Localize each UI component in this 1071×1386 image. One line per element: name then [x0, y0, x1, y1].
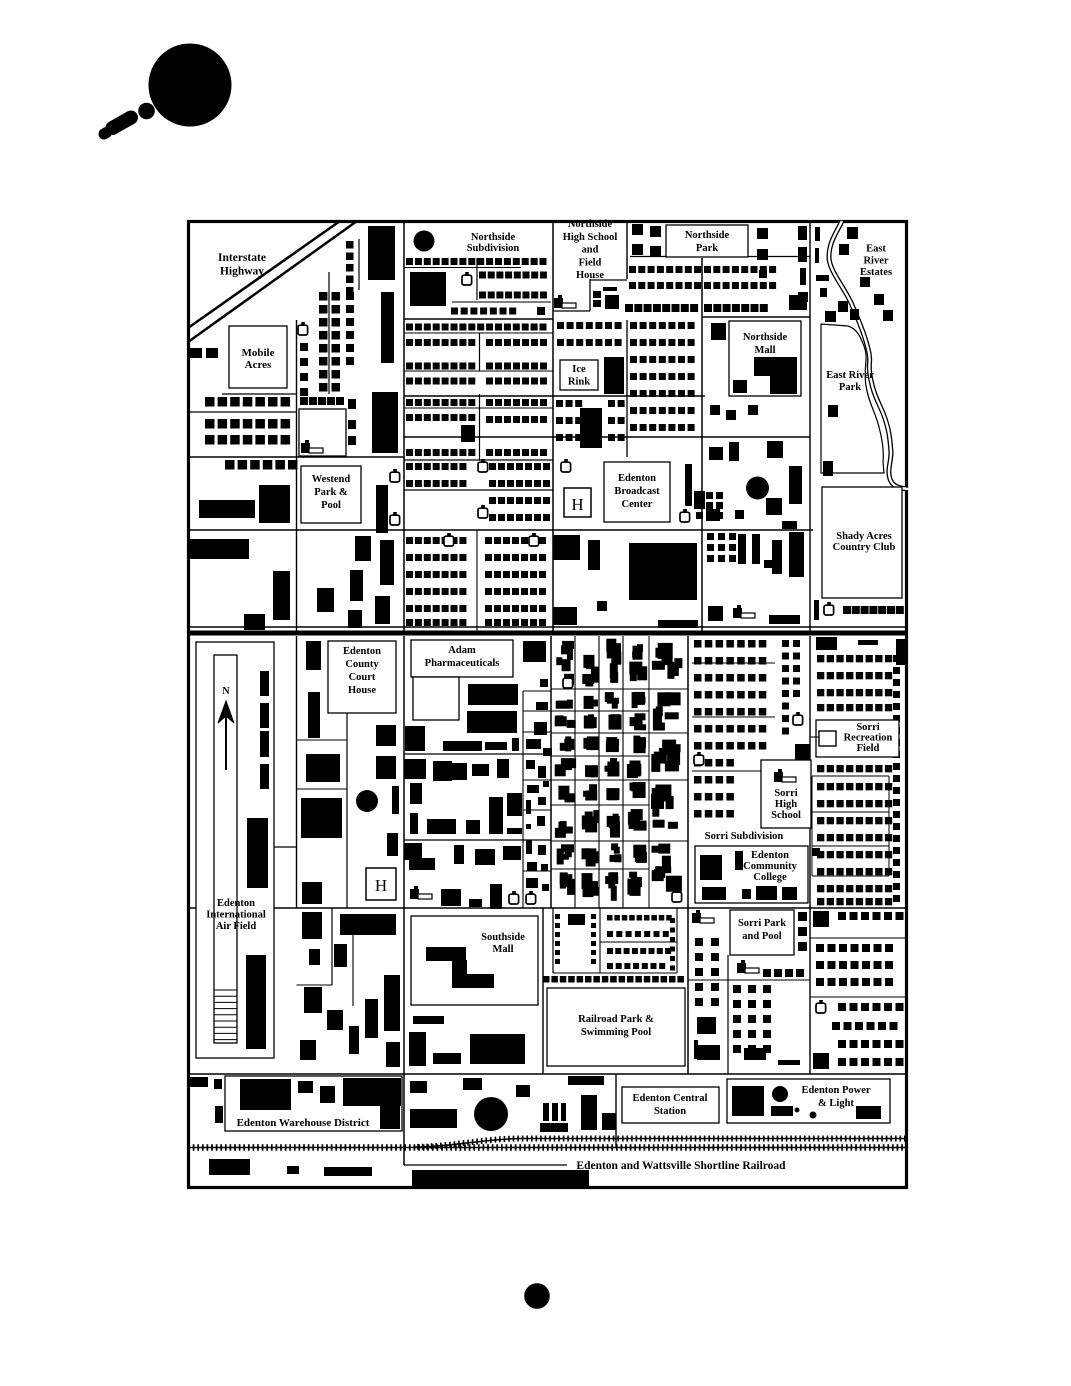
svg-text:Northside: Northside	[471, 232, 516, 243]
svg-text:Interstate: Interstate	[218, 252, 266, 264]
svg-text:Mall: Mall	[493, 944, 514, 955]
svg-text:Sorri: Sorri	[856, 722, 879, 733]
svg-text:Recreation: Recreation	[844, 732, 893, 743]
svg-text:College: College	[753, 872, 787, 883]
svg-text:Sorri: Sorri	[774, 788, 797, 799]
svg-text:& Light: & Light	[818, 1098, 854, 1109]
svg-text:Northside: Northside	[568, 219, 613, 230]
svg-text:Edenton Power: Edenton Power	[801, 1085, 870, 1096]
svg-text:H: H	[375, 876, 387, 895]
svg-text:School: School	[771, 810, 801, 821]
svg-text:Community: Community	[743, 861, 797, 872]
svg-text:East: East	[866, 244, 886, 255]
svg-text:Air Field: Air Field	[216, 921, 257, 932]
svg-text:High School: High School	[563, 232, 618, 243]
svg-text:and Pool: and Pool	[742, 931, 781, 942]
svg-text:Ice: Ice	[572, 364, 586, 375]
svg-text:Station: Station	[654, 1106, 686, 1117]
svg-text:Country Club: Country Club	[833, 542, 896, 553]
svg-text:and: and	[582, 245, 599, 256]
svg-text:Edenton: Edenton	[618, 473, 656, 484]
svg-text:County: County	[345, 659, 379, 670]
svg-text:Railroad Park &: Railroad Park &	[578, 1014, 654, 1025]
svg-text:Pool: Pool	[321, 500, 341, 511]
svg-text:Field: Field	[579, 257, 602, 268]
svg-text:Westend: Westend	[312, 474, 351, 485]
svg-text:Subdivision: Subdivision	[467, 243, 520, 254]
svg-text:Swimming Pool: Swimming Pool	[581, 1027, 651, 1038]
svg-text:Park: Park	[696, 243, 718, 254]
svg-text:Shady Acres: Shady Acres	[836, 531, 892, 542]
svg-text:Mall: Mall	[755, 345, 776, 356]
svg-text:Northside: Northside	[743, 332, 788, 343]
svg-text:Highway: Highway	[220, 266, 264, 278]
svg-text:Field: Field	[857, 743, 880, 754]
svg-text:Edenton Central: Edenton Central	[633, 1093, 708, 1104]
svg-text:Edenton and Wattsville Shortli: Edenton and Wattsville Shortline Railroa…	[576, 1160, 786, 1172]
svg-text:Southside: Southside	[481, 932, 525, 943]
svg-text:House: House	[576, 270, 604, 281]
svg-text:Mobile: Mobile	[242, 347, 275, 359]
svg-text:Sorri Park: Sorri Park	[738, 918, 786, 929]
svg-text:N: N	[222, 686, 230, 697]
svg-text:Edenton Warehouse District: Edenton Warehouse District	[237, 1117, 370, 1129]
svg-text:Estates: Estates	[860, 267, 892, 278]
svg-text:East River: East River	[826, 370, 874, 381]
svg-text:Park: Park	[839, 382, 861, 393]
svg-text:Sorri Subdivision: Sorri Subdivision	[705, 831, 784, 842]
svg-text:High: High	[775, 799, 797, 810]
svg-text:Court: Court	[349, 672, 376, 683]
svg-text:International: International	[206, 910, 266, 921]
svg-text:H: H	[571, 495, 583, 514]
svg-text:Pharmaceuticals: Pharmaceuticals	[425, 658, 500, 669]
svg-text:Northside: Northside	[685, 230, 730, 241]
svg-text:Acres: Acres	[245, 359, 272, 371]
svg-text:Edenton: Edenton	[217, 898, 255, 909]
svg-text:Broadcast: Broadcast	[614, 486, 660, 497]
svg-text:Center: Center	[622, 499, 653, 510]
svg-text:River: River	[863, 255, 888, 266]
svg-text:Edenton: Edenton	[751, 850, 789, 861]
svg-text:Adam: Adam	[448, 645, 476, 656]
svg-text:House: House	[348, 685, 376, 696]
svg-text:Rink: Rink	[568, 377, 590, 388]
svg-text:Park &: Park &	[314, 487, 348, 498]
svg-text:Edenton: Edenton	[343, 646, 381, 657]
